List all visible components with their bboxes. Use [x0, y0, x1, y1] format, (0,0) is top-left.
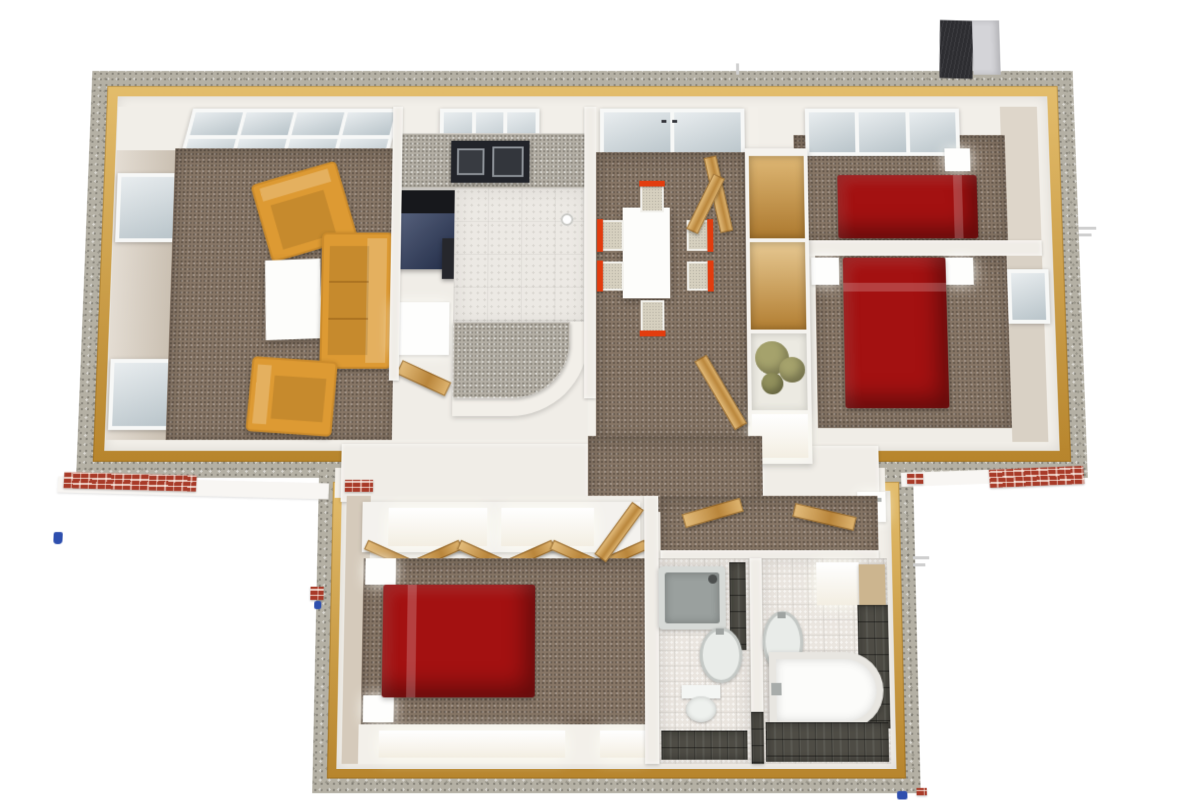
- green-storage-ball: [761, 373, 783, 395]
- dining-chair: [638, 297, 668, 336]
- coffee-table: [265, 259, 321, 341]
- window-pane: [859, 112, 906, 152]
- closet-opening: [388, 508, 487, 546]
- shelf-compartment-storage: [751, 333, 808, 410]
- kitchen-door: [396, 360, 451, 396]
- living-west-window-2: [108, 359, 174, 430]
- shower: [659, 566, 726, 629]
- window-pane: [119, 177, 176, 238]
- shower-room: [659, 558, 752, 764]
- wall-kitchen-dining: [584, 107, 596, 399]
- chimney-dark-flue: [939, 20, 972, 79]
- shelf-compartment-wood: [750, 242, 807, 329]
- dining-table: [623, 208, 671, 299]
- bedroom2-south-wall-face: [818, 428, 1012, 442]
- nightstand: [363, 695, 394, 722]
- kitchen-cabinet: [393, 302, 449, 355]
- chimney-light-stack: [972, 20, 1001, 74]
- window-pane: [190, 112, 243, 135]
- dining-chair: [637, 181, 667, 215]
- brick-course-right: [989, 466, 1084, 488]
- window-pane: [112, 363, 170, 426]
- bedroom1-window: [805, 109, 960, 156]
- sofa: [319, 233, 393, 369]
- dimension-tick: [736, 63, 739, 74]
- dining-chair: [684, 259, 714, 294]
- toilet-bowl: [686, 696, 717, 722]
- floorplan-render: [0, 0, 1200, 800]
- shower-head: [708, 575, 717, 584]
- brick-course-left: [63, 472, 196, 491]
- sink-drain: [561, 213, 574, 225]
- living-west-window-1: [115, 173, 180, 242]
- dining-chair: [597, 259, 627, 294]
- window-pane: [1011, 273, 1046, 320]
- door-pane: [604, 112, 671, 156]
- window-pane: [909, 112, 956, 152]
- burner: [457, 148, 485, 175]
- brick-chip: [310, 587, 323, 600]
- bathroom-dark-floor: [766, 722, 890, 762]
- double-bed: [837, 175, 978, 238]
- armchair: [245, 356, 337, 437]
- burner: [492, 146, 524, 176]
- door-pane: [674, 112, 741, 156]
- nightstand: [945, 258, 973, 285]
- basin-faucet: [777, 612, 785, 618]
- nightstand: [365, 558, 396, 584]
- survey-marker-blue: [314, 601, 321, 609]
- survey-marker-blue: [53, 532, 63, 544]
- double-bed: [382, 585, 536, 698]
- window-pane: [342, 112, 395, 135]
- washbasin: [699, 627, 742, 682]
- dimension-tick: [913, 563, 925, 566]
- appliance-top: [397, 190, 456, 213]
- nightstand: [944, 148, 970, 171]
- bathroom-tan-door: [859, 564, 886, 607]
- hall-shelving-unit: [745, 148, 813, 463]
- dining-chair: [597, 217, 627, 254]
- shower-room-dark-floor: [661, 731, 747, 760]
- tiled-wall-strip: [751, 712, 764, 764]
- dining-area: [596, 107, 752, 440]
- survey-marker-blue: [897, 791, 907, 799]
- brick-chip: [345, 480, 373, 492]
- dimension-tick: [1078, 227, 1096, 230]
- bedroom3-closet: [362, 502, 641, 552]
- wall-bedroom3-bath: [644, 496, 659, 764]
- door-handle: [672, 120, 677, 123]
- stove: [451, 141, 530, 183]
- double-bed: [843, 258, 950, 409]
- door-handle: [662, 120, 667, 123]
- green-storage-ball: [779, 357, 805, 383]
- window-pane: [241, 112, 294, 135]
- living-room: [106, 107, 399, 440]
- brick-chip: [916, 788, 926, 795]
- bedroom-wing: [342, 496, 654, 764]
- tub-faucet: [771, 683, 781, 695]
- render-scene: [0, 17, 1200, 800]
- kitchen-tile-floor: [453, 188, 588, 325]
- dimension-tick: [1079, 234, 1092, 237]
- bedroom3-south-window: [379, 731, 566, 758]
- brick-chip: [907, 474, 923, 484]
- window-pane: [292, 112, 345, 135]
- junction-wall-left: [341, 444, 588, 502]
- dimension-tick: [913, 556, 929, 559]
- basin-faucet: [716, 629, 724, 635]
- bathtub-basin: [776, 659, 877, 721]
- bathroom-lit-doorway: [816, 562, 859, 605]
- window-pane: [809, 112, 856, 152]
- kitchen: [392, 107, 588, 440]
- shelf-compartment-wood: [749, 156, 805, 238]
- toilet: [682, 685, 721, 722]
- bedroom2-east-window: [1007, 269, 1050, 323]
- nightstand: [811, 258, 839, 285]
- bathroom: [762, 558, 892, 764]
- bathtub: [769, 652, 885, 728]
- bedroom3-south-window-small: [600, 731, 645, 758]
- bedroom3-south-wall-face: [358, 724, 653, 764]
